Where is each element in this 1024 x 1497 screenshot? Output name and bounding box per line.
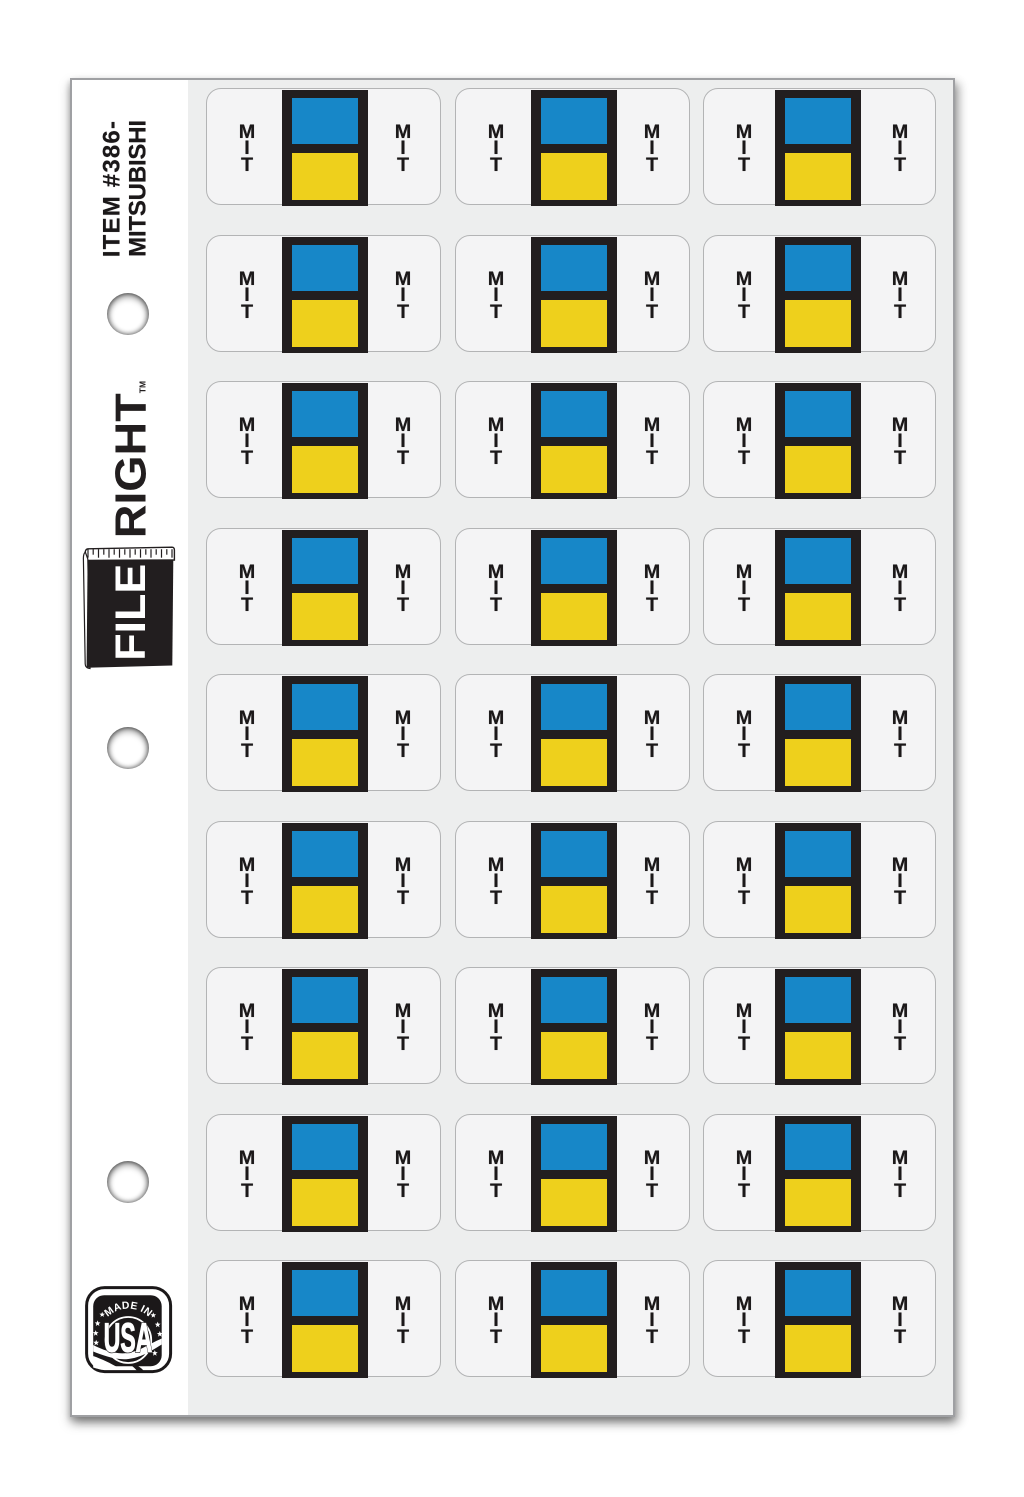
svg-text:TM: TM xyxy=(138,381,148,393)
svg-text:FILE: FILE xyxy=(108,564,155,661)
svg-text:RIGHT: RIGHT xyxy=(107,393,156,538)
svg-text:USA: USA xyxy=(104,1315,153,1361)
